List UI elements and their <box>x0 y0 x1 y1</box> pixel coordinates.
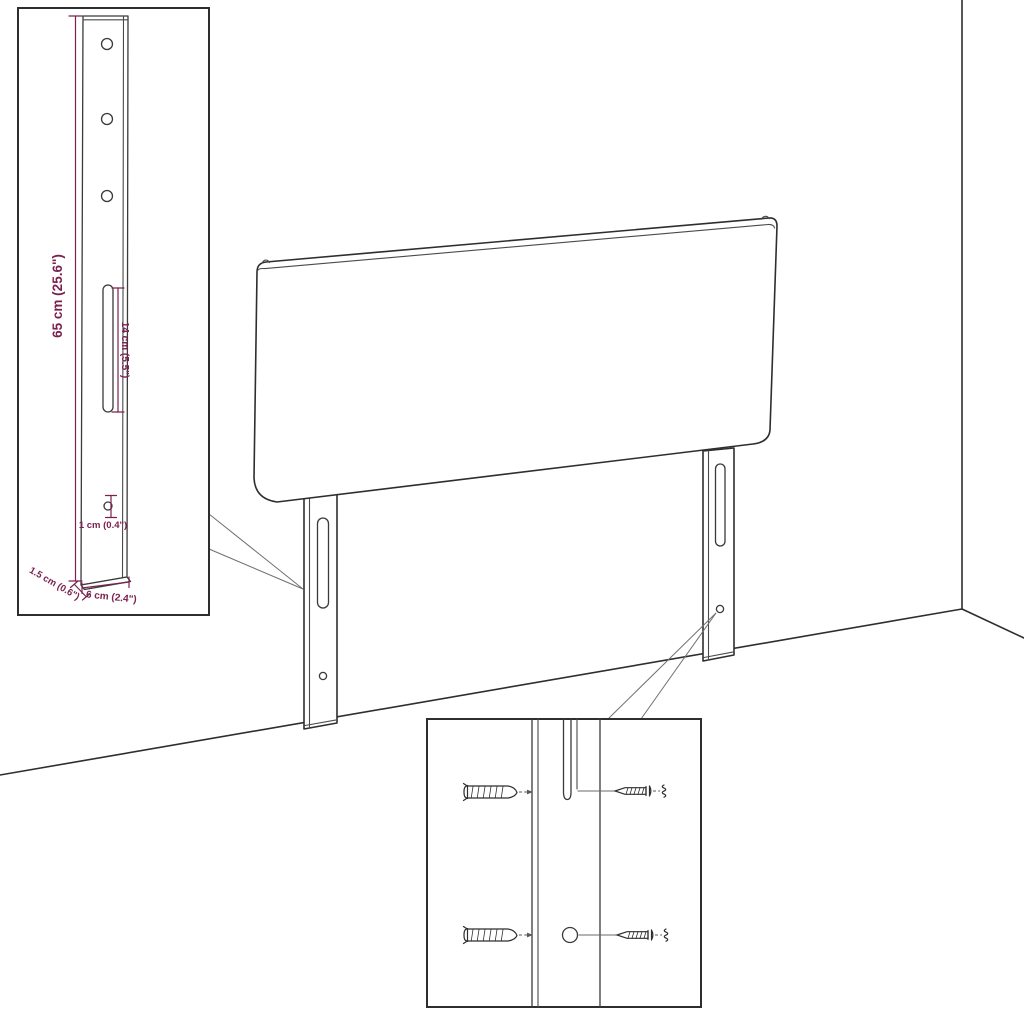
height-dimension-label: 65 cm (25.6") <box>50 254 65 338</box>
callout-line-hole-to-inset-right <box>641 613 716 719</box>
callout-line-inset-to-leg-upper <box>209 514 303 589</box>
bracket-hole-middle <box>102 114 113 125</box>
mounting-detail-inset <box>427 719 701 1007</box>
right-mounting-leg <box>703 448 734 661</box>
right-leg-screw-hole <box>716 605 723 612</box>
slot-length-dimension-label: 14 cm (5.5") <box>119 322 130 378</box>
diagram-canvas: 65 cm (25.6") 14 cm (5.5") 1 cm (0.4") 1… <box>0 0 1024 1024</box>
left-leg-slot <box>318 518 329 608</box>
left-leg-screw-hole <box>319 672 326 679</box>
hole-diameter-dimension-label: 1 cm (0.4") <box>79 520 127 531</box>
right-leg-slot <box>716 464 726 546</box>
headboard-panel <box>254 218 777 502</box>
left-mounting-leg <box>304 491 337 729</box>
bracket-slot <box>103 285 113 412</box>
headboard <box>254 216 777 502</box>
bracket-hole-lower <box>102 191 113 202</box>
floor-wall-line-right <box>962 609 1024 638</box>
bracket-hole-top <box>102 39 113 50</box>
strip-screw-hole <box>563 928 578 943</box>
callout-line-inset-to-leg-lower <box>209 549 303 589</box>
headboard-assembly-diagram: 65 cm (25.6") 14 cm (5.5") 1 cm (0.4") 1… <box>0 0 1024 1024</box>
bracket-detail-inset: 65 cm (25.6") 14 cm (5.5") 1 cm (0.4") 1… <box>18 8 209 615</box>
callout-line-hole-to-inset-left <box>608 613 716 719</box>
callout-lines <box>209 514 716 719</box>
